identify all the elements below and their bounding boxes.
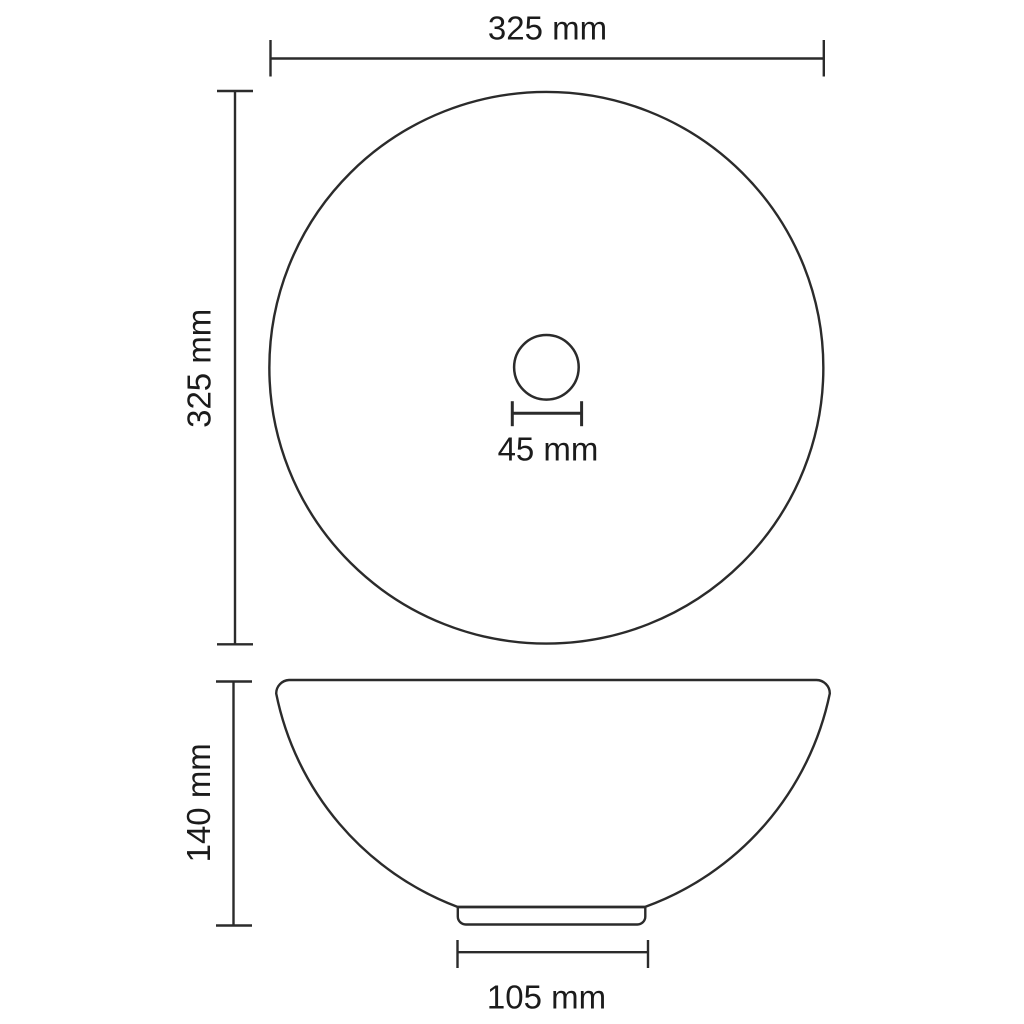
svg-text:45 mm: 45 mm (498, 431, 599, 468)
svg-text:105 mm: 105 mm (487, 979, 606, 1016)
svg-text:325 mm: 325 mm (488, 10, 607, 47)
svg-text:140 mm: 140 mm (180, 743, 217, 862)
svg-text:325 mm: 325 mm (181, 309, 218, 428)
